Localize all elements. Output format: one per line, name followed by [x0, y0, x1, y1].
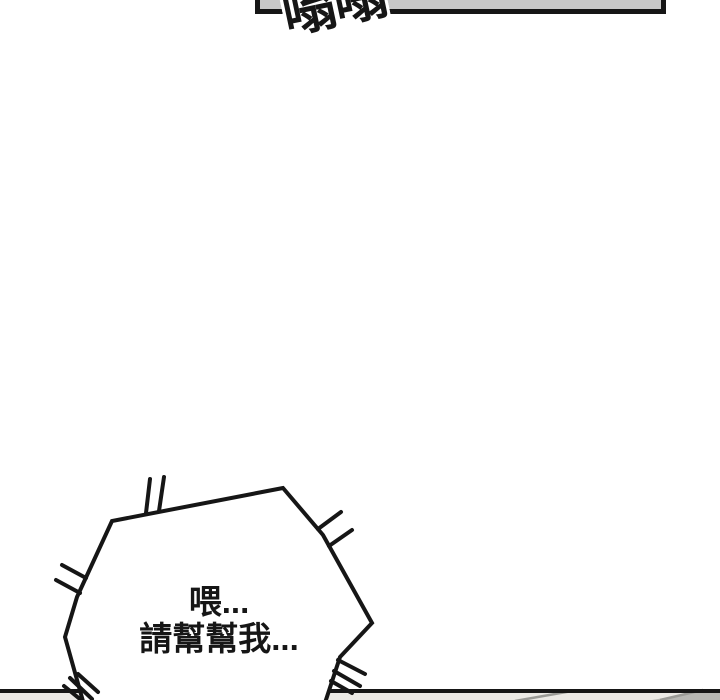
tremble-marks-top — [146, 477, 164, 513]
bubble-line-2: 請幫幫我... — [99, 620, 339, 657]
comic-page: 嗡嗡 — [0, 0, 720, 700]
bubble-line-1: 喂... — [99, 583, 339, 620]
speech-bubble-text: 喂... 請幫幫我... — [99, 583, 339, 657]
